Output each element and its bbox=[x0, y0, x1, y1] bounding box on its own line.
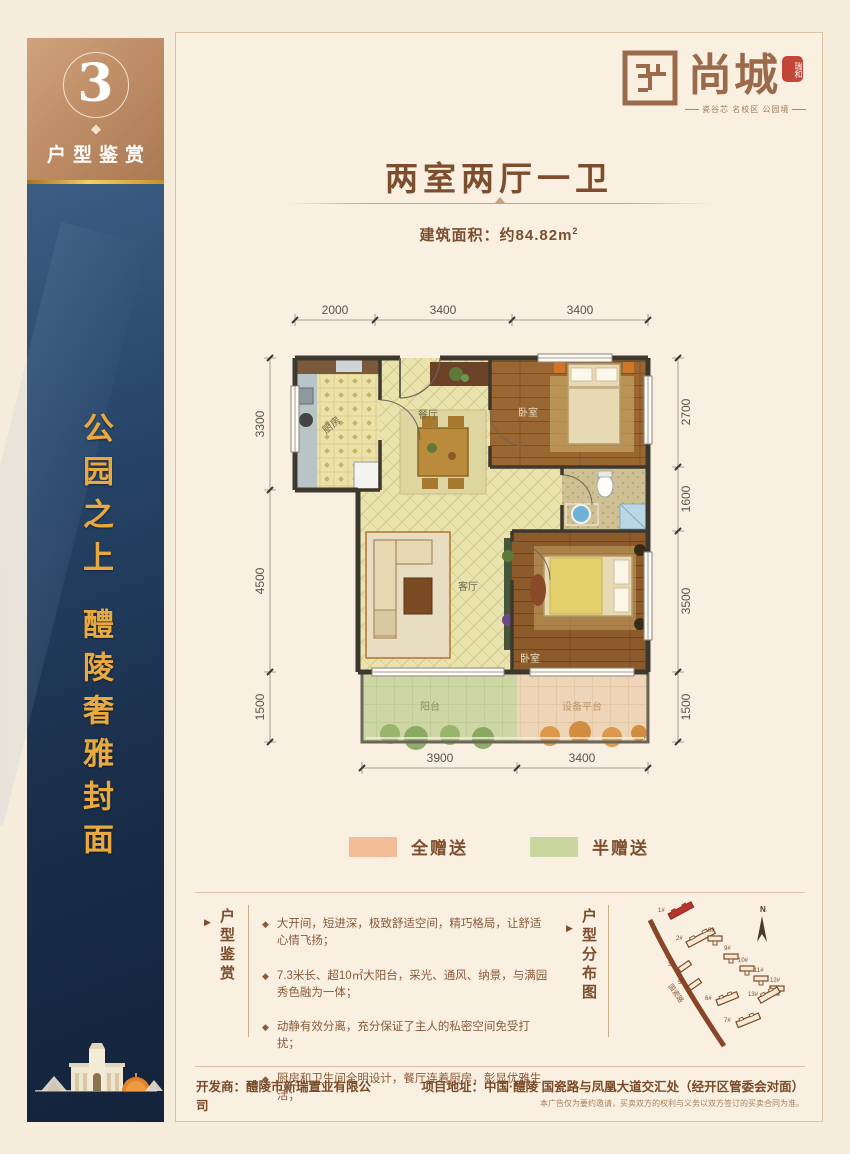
diamond-bullet-icon: ◆ bbox=[262, 968, 269, 1003]
dim-left-2: 4500 bbox=[253, 567, 267, 594]
chair bbox=[422, 478, 438, 489]
building-11 bbox=[754, 976, 768, 985]
building-3 bbox=[678, 961, 692, 973]
tagline-dash-left bbox=[685, 109, 699, 110]
building-6 bbox=[715, 990, 738, 1006]
toilet-tank bbox=[598, 471, 612, 477]
banner-number-block: 3 户型鉴赏 bbox=[27, 38, 164, 180]
sink-icon bbox=[299, 388, 313, 404]
features-section-label: 户型鉴赏 bbox=[216, 908, 237, 984]
floor-area-value: 建筑面积：约84.82m bbox=[420, 227, 573, 244]
table-plant bbox=[427, 443, 437, 453]
feature-item: ◆7.3米长、超10㎡大阳台，采光、通风、纳景，与满园秀色融为一体； bbox=[262, 968, 552, 1003]
logo-wordmark: 尚城 bbox=[688, 50, 780, 102]
banner-section-label: 户型鉴赏 bbox=[27, 140, 164, 167]
building-label: 3# bbox=[668, 962, 675, 968]
brand-logo: 尚城 瑞和 瓷谷芯 名校区 公园境 bbox=[622, 48, 807, 118]
dim-right-2: 1600 bbox=[679, 485, 693, 512]
page-number: 3 bbox=[63, 52, 129, 118]
feature-text: 大开间，短进深，极致舒适空间，精巧格局，让舒适心情飞扬； bbox=[277, 916, 552, 951]
plant-icon bbox=[502, 550, 514, 562]
sitemap-header: ▶ bbox=[566, 918, 573, 936]
page-title: 两室两厅一卫 bbox=[176, 152, 822, 200]
plant-leaf bbox=[461, 374, 469, 382]
features-divider bbox=[248, 905, 249, 1037]
building-13 bbox=[757, 985, 780, 1003]
slogan-line-2: 醴陵奢雅封面 bbox=[73, 608, 118, 866]
tree-icon bbox=[602, 727, 622, 747]
section-divider bbox=[195, 892, 805, 893]
building-label: 6# bbox=[705, 996, 712, 1002]
nightstand bbox=[554, 362, 565, 373]
banner-navy-panel: 公园之上 醴陵奢雅封面 bbox=[27, 184, 164, 1122]
legend-item-full-gift: 全赠送 bbox=[349, 834, 468, 859]
features-header: ▶ bbox=[204, 912, 211, 930]
diamond-bullet-icon: ◆ bbox=[262, 916, 269, 951]
tree-icon bbox=[569, 721, 591, 743]
building-label: 8# bbox=[708, 928, 715, 934]
dining-table bbox=[418, 428, 468, 476]
arrow-right-icon: ▶ bbox=[566, 923, 573, 933]
building-label: 1# bbox=[658, 908, 665, 914]
title-triangle-ornament bbox=[495, 197, 505, 203]
red-seal-badge: 瑞和 bbox=[782, 56, 803, 82]
floor-plan: 厨房 餐厅 卧室 客厅 卧室 阳台 设备平台 2000 3400 3400 33… bbox=[250, 290, 730, 790]
dim-top-2: 3400 bbox=[430, 303, 457, 317]
gateway-building-illustration bbox=[27, 1029, 164, 1121]
legend-swatch-green bbox=[530, 837, 578, 857]
building-10 bbox=[740, 966, 754, 975]
building-9 bbox=[724, 954, 738, 963]
dim-right-4: 1500 bbox=[679, 693, 693, 720]
building-label: 12# bbox=[770, 978, 781, 984]
compass-label: N bbox=[760, 905, 766, 914]
stove-icon bbox=[299, 413, 313, 427]
dim-bottom-1: 3900 bbox=[427, 751, 454, 765]
title-underline bbox=[286, 203, 712, 204]
left-banner: 3 户型鉴赏 公园之上 醴陵奢雅封面 bbox=[27, 38, 164, 1122]
room-label-equipment: 设备平台 bbox=[562, 700, 602, 713]
toilet-icon bbox=[597, 475, 613, 497]
armchair bbox=[374, 610, 396, 636]
diamond-ornament bbox=[91, 125, 101, 135]
diamond-bullet-icon: ◆ bbox=[262, 1019, 269, 1054]
dim-right-3: 3500 bbox=[679, 587, 693, 614]
room-label-living: 客厅 bbox=[458, 580, 478, 593]
dim-top-3: 3400 bbox=[567, 303, 594, 317]
dim-left-1: 3300 bbox=[253, 410, 267, 437]
coffee-table bbox=[404, 578, 432, 614]
dim-left-3: 1500 bbox=[253, 693, 267, 720]
arrow-right-icon: ▶ bbox=[204, 917, 211, 927]
building-label: 11# bbox=[754, 968, 764, 974]
footer-divider bbox=[195, 1066, 805, 1067]
site-plan-map: 国瓷路 N 1# 2# 3# 5# bbox=[612, 898, 812, 1060]
building-label: 13# bbox=[748, 992, 759, 998]
bedroom2-chair bbox=[530, 574, 546, 606]
building-8 bbox=[708, 936, 722, 945]
building-label: 9# bbox=[724, 946, 731, 952]
vertical-slogan: 公园之上 醴陵奢雅封面 bbox=[27, 412, 164, 866]
logo-tagline-row: 瓷谷芯 名校区 公园境 bbox=[682, 104, 808, 115]
pillow bbox=[596, 368, 617, 381]
tagline-dash-right bbox=[792, 109, 806, 110]
fridge-icon bbox=[354, 462, 380, 490]
bed-blanket bbox=[550, 558, 602, 614]
logo-tagline: 瓷谷芯 名校区 公园境 bbox=[702, 105, 789, 114]
feature-text: 7.3米长、超10㎡大阳台，采光、通风、纳景，与满园秀色融为一体； bbox=[277, 968, 552, 1003]
table-dish bbox=[448, 452, 456, 460]
building-label: 5# bbox=[678, 980, 685, 986]
chair bbox=[448, 478, 464, 489]
legend-label-full-gift: 全赠送 bbox=[411, 834, 468, 859]
logo-seal-icon bbox=[622, 50, 678, 106]
building-1-highlight bbox=[667, 900, 694, 919]
feature-text: 动静有效分离，充分保证了主人的私密空间免受打扰； bbox=[277, 1019, 552, 1054]
building-5 bbox=[688, 979, 702, 991]
chair bbox=[448, 416, 464, 427]
room-label-bedroom2: 卧室 bbox=[520, 652, 540, 665]
nightstand bbox=[623, 362, 634, 373]
pillow bbox=[571, 368, 592, 381]
room-label-dining: 餐厅 bbox=[418, 408, 438, 421]
legend-swatch-orange bbox=[349, 837, 397, 857]
pillow bbox=[614, 560, 629, 584]
poster-canvas: 3 户型鉴赏 公园之上 醴陵奢雅封面 bbox=[0, 0, 850, 1154]
sitemap-section-label: 户型分布图 bbox=[578, 908, 599, 1003]
sitemap-divider bbox=[608, 905, 609, 1037]
legend-item-half-gift: 半赠送 bbox=[530, 834, 649, 859]
building-label: 2# bbox=[676, 936, 683, 942]
bed-fold bbox=[568, 386, 620, 389]
disclaimer-text: 本广告仅为要约邀请，买卖双方的权利与义务以双方签订的买卖合同为准。 bbox=[420, 1098, 804, 1109]
legend-label-half-gift: 半赠送 bbox=[592, 834, 649, 859]
dim-top-1: 2000 bbox=[322, 303, 349, 317]
site-buildings: 1# 2# 3# 5# 6# 7# bbox=[658, 900, 784, 1028]
slogan-line-1: 公园之上 bbox=[73, 412, 118, 584]
building-label: 7# bbox=[724, 1018, 731, 1024]
building-7 bbox=[735, 1011, 760, 1027]
plant-icon bbox=[449, 367, 463, 381]
building-label: 10# bbox=[738, 958, 749, 964]
compass-arrow-icon bbox=[757, 916, 767, 942]
floor-area-sup: 2 bbox=[572, 226, 578, 236]
room-label-bedroom1: 卧室 bbox=[518, 406, 538, 419]
floor-area-text: 建筑面积：约84.82m2 bbox=[176, 224, 822, 245]
room-label-balcony: 阳台 bbox=[420, 700, 440, 713]
washbasin-icon bbox=[572, 505, 590, 523]
dim-right-1: 2700 bbox=[679, 398, 693, 425]
dim-bottom-2: 3400 bbox=[569, 751, 596, 765]
pillow bbox=[614, 588, 629, 612]
legend: 全赠送 半赠送 bbox=[176, 834, 822, 859]
feature-item: ◆动静有效分离，充分保证了主人的私密空间免受打扰； bbox=[262, 1019, 552, 1054]
developer-text: 开发商：醴陵市新瑞置业有限公司 bbox=[196, 1076, 383, 1114]
feature-item: ◆大开间，短进深，极致舒适空间，精巧格局，让舒适心情飞扬； bbox=[262, 916, 552, 951]
